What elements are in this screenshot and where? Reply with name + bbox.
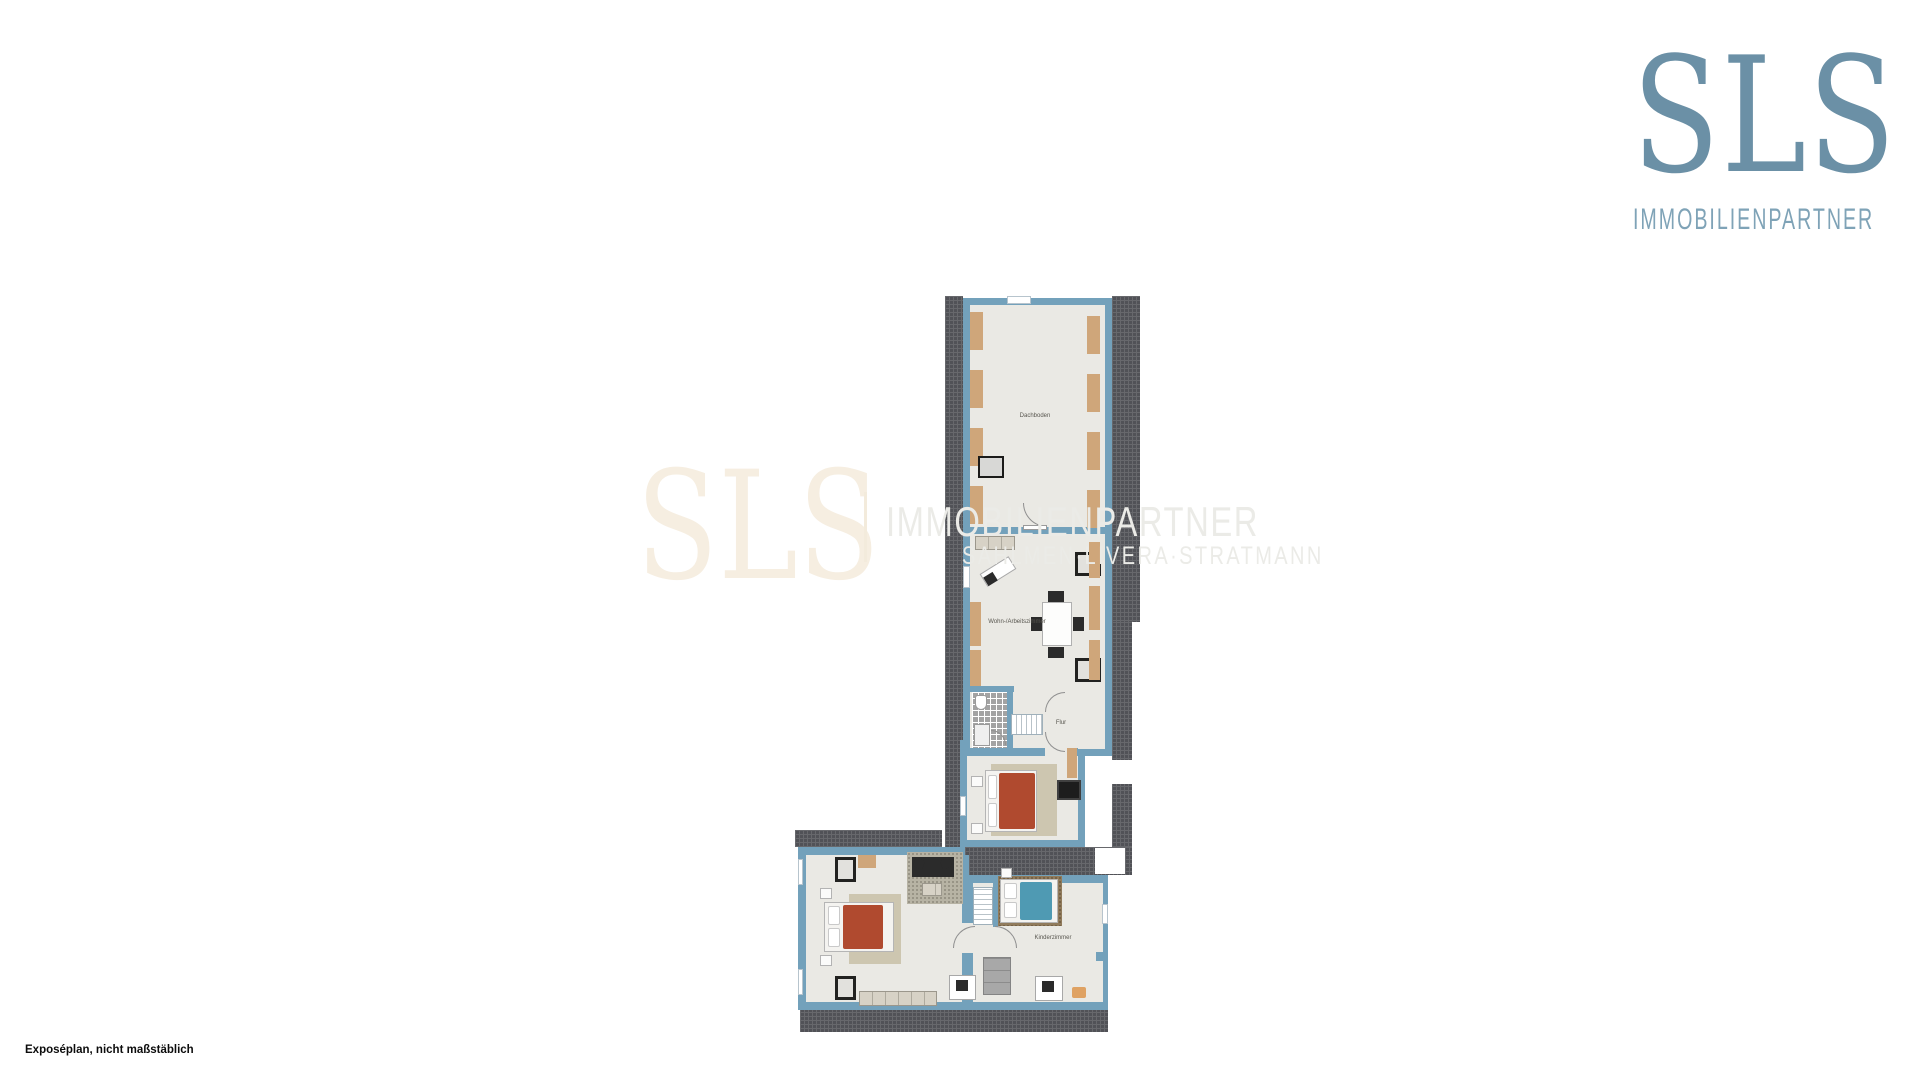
window — [960, 796, 966, 816]
room-label-wohnzimmer: Wohn-/Arbeitszimmer — [988, 619, 1046, 626]
window — [963, 566, 970, 588]
dining-table — [1042, 602, 1072, 646]
nightstand — [971, 823, 983, 834]
roof-area — [1112, 296, 1140, 622]
dormer-notch — [1112, 760, 1140, 784]
door-leaf — [1023, 525, 1047, 530]
floor-plan: Dachboden Wohn-/Arbeitszimmer Flur — [795, 296, 1145, 1036]
room-label-kinderzimmer: Kinderzimmer — [1034, 935, 1071, 942]
bed-cover — [843, 905, 883, 949]
bed-cover — [1020, 882, 1052, 920]
dormer-notch — [1095, 848, 1125, 874]
knee-wall — [1089, 640, 1100, 680]
window — [1102, 904, 1108, 924]
knee-wall — [970, 486, 983, 524]
window — [1007, 296, 1031, 304]
knee-wall — [1089, 542, 1100, 578]
interior-wall — [962, 855, 969, 927]
staircase — [973, 887, 993, 925]
bench — [1072, 987, 1086, 998]
roof-area — [800, 1008, 1108, 1032]
knee-wall — [970, 370, 983, 408]
chair — [1073, 617, 1084, 631]
staircase — [1011, 714, 1043, 735]
logo-brand-text: SLS — [1632, 36, 1897, 196]
pillow — [828, 906, 840, 925]
nightstand — [820, 888, 832, 899]
framed-skylight — [835, 976, 856, 1000]
pillow — [988, 775, 997, 799]
window — [798, 859, 803, 885]
pillow — [1004, 902, 1017, 918]
knee-wall — [1089, 586, 1100, 630]
bed-cover — [999, 773, 1035, 829]
nightstand — [971, 776, 983, 787]
knee-wall — [1087, 316, 1100, 354]
page: SLS IMMOBILIENPARTNER — [0, 0, 1920, 1080]
logo-subtitle-text: IMMOBILIENPARTNER — [1633, 203, 1874, 237]
knee-wall — [1087, 490, 1100, 528]
cabinet-row — [975, 536, 1015, 550]
desk-chair — [1042, 981, 1054, 992]
knee-wall — [858, 855, 876, 868]
chair — [1048, 591, 1064, 602]
disclaimer-note: Exposéplan, nicht maßstäblich — [25, 1044, 194, 1056]
pillow — [1004, 883, 1017, 899]
pillow — [988, 803, 997, 827]
roof-area — [795, 830, 942, 847]
tv-stand — [1057, 780, 1081, 800]
shower — [974, 724, 990, 746]
roof-area — [1112, 622, 1132, 872]
window — [798, 969, 803, 995]
knee-wall — [970, 650, 981, 686]
room-label-flur: Flur — [1056, 720, 1066, 727]
knee-wall — [1067, 748, 1077, 778]
nightstand — [1001, 868, 1012, 878]
knee-wall — [970, 602, 981, 646]
framed-skylight — [835, 857, 856, 882]
cabinet-row — [859, 991, 937, 1006]
knee-wall — [1087, 374, 1100, 412]
under-stair-storage — [983, 957, 1011, 995]
desk-chair — [956, 980, 968, 991]
chair — [1048, 647, 1064, 658]
room-label-dachboden: Dachboden — [1020, 413, 1051, 420]
toilet — [975, 695, 987, 710]
chimney — [978, 456, 1004, 478]
side-table — [922, 883, 942, 896]
wall-notch — [1096, 952, 1104, 961]
nightstand — [820, 955, 832, 966]
knee-wall — [970, 312, 983, 350]
knee-wall — [1087, 432, 1100, 470]
pillow — [828, 928, 840, 947]
